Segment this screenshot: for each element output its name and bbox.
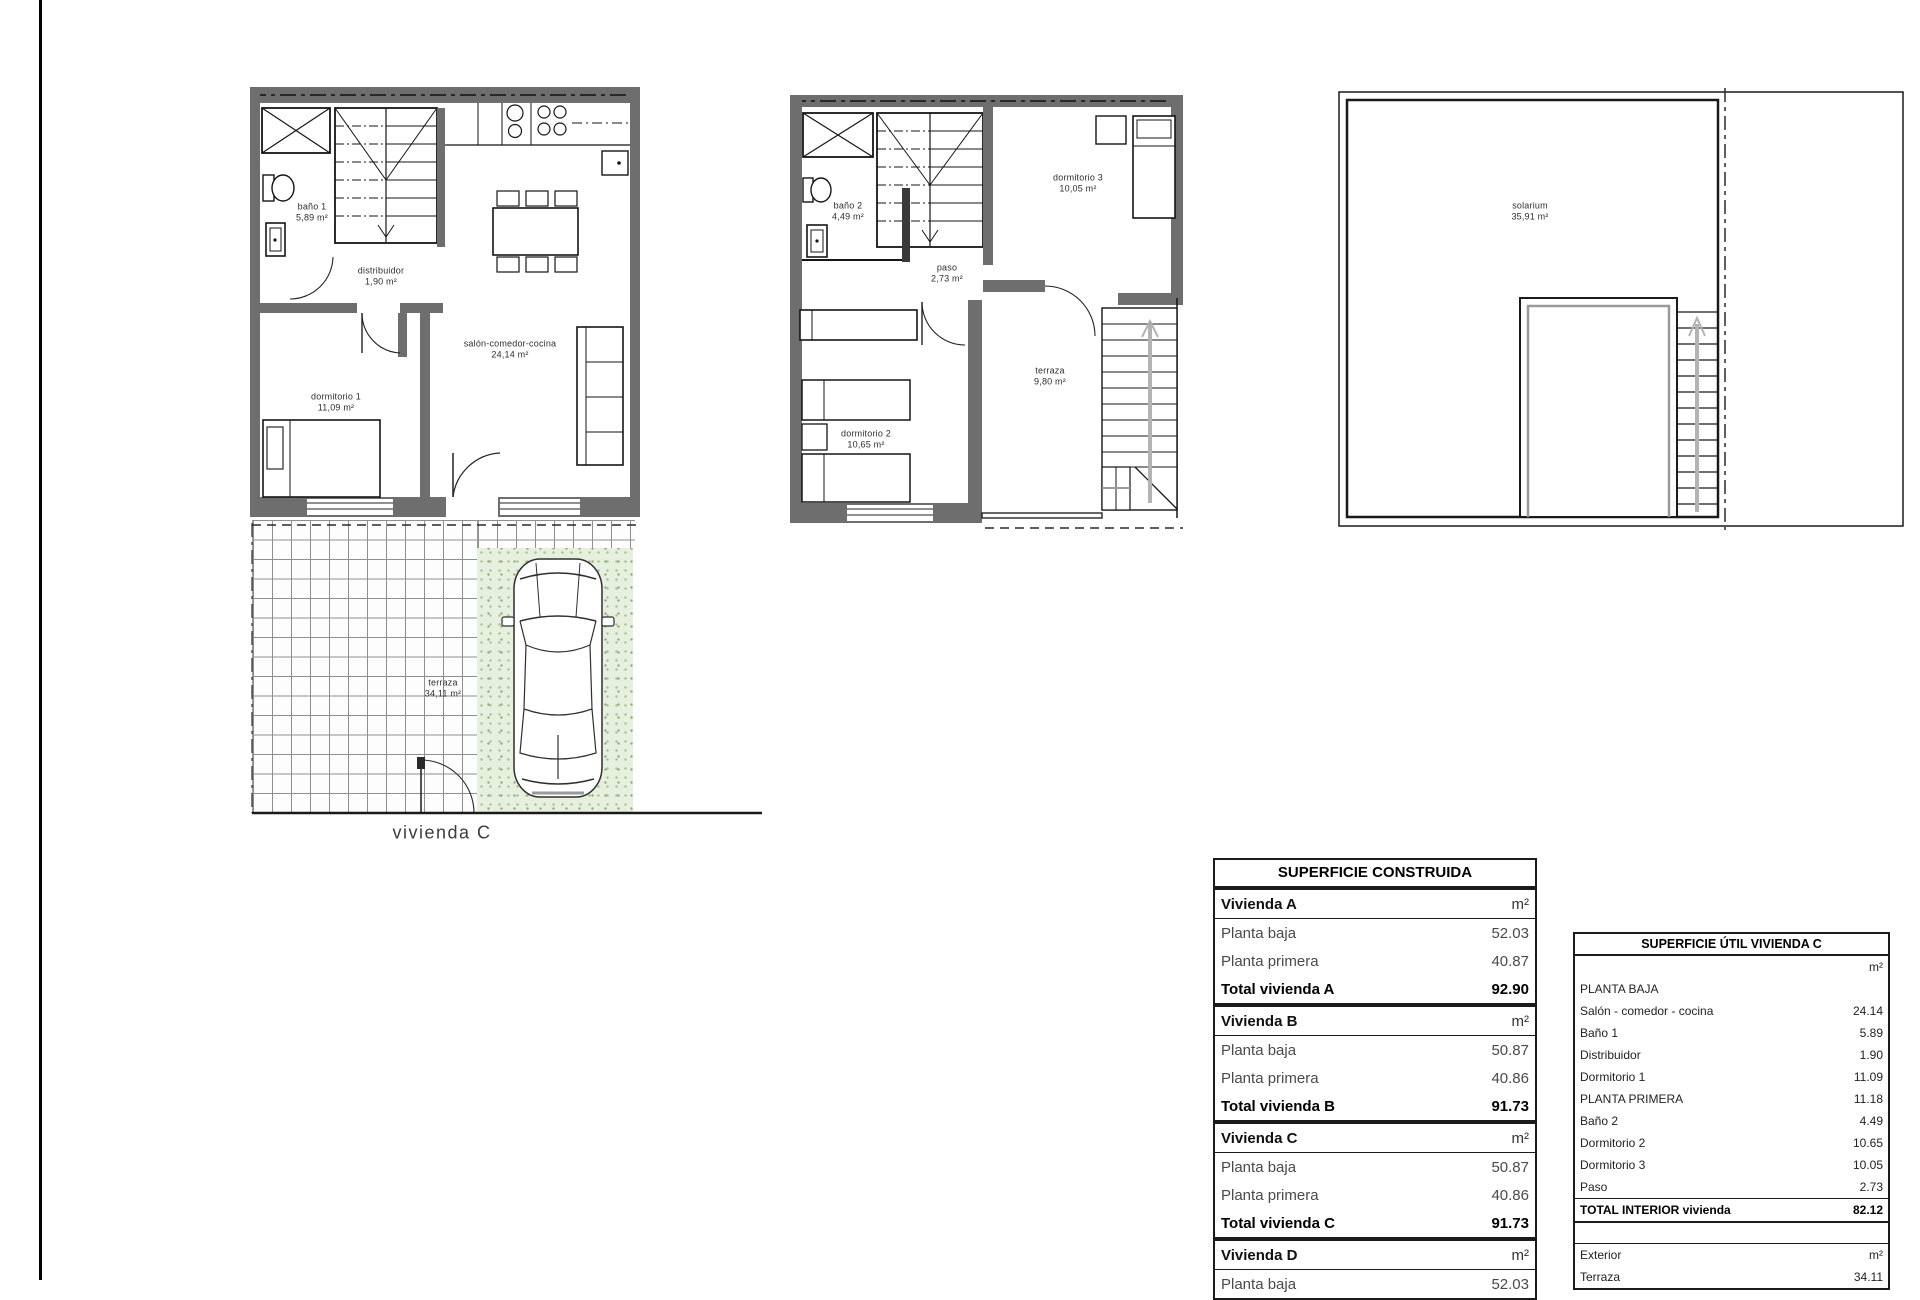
table-row: Vivienda Am²: [1215, 888, 1535, 919]
room-label-salon: salón-comedor-cocina 24,14 m²: [464, 339, 557, 360]
room-name: baño 1: [296, 202, 328, 213]
row-label: Baño 2: [1575, 1111, 1618, 1132]
row-value: 11.18: [1854, 1089, 1888, 1110]
floorplan-planta-primera-drawing: [790, 88, 1183, 533]
room-area: 9,80 m²: [1034, 376, 1066, 387]
row-value: 52.03: [1491, 1271, 1535, 1298]
table-row: Total vivienda C91.73: [1215, 1209, 1535, 1239]
row-label: Paso: [1575, 1177, 1607, 1198]
row-label: Baño 1: [1575, 1023, 1618, 1044]
room-name: dormitorio 3: [1053, 173, 1103, 184]
floorplan-solarium: [1338, 88, 1905, 530]
row-value: 40.87: [1491, 948, 1535, 975]
row-label: Total vivienda C: [1215, 1210, 1335, 1237]
table-row: PLANTA BAJA: [1575, 978, 1888, 1000]
row-label: Terraza: [1575, 1267, 1620, 1288]
table-row: Dormitorio 111.09: [1575, 1066, 1888, 1088]
row-label: Vivienda B: [1215, 1008, 1297, 1035]
table-row: Terraza34.11: [1575, 1266, 1888, 1288]
row-label: Planta primera: [1215, 948, 1319, 975]
table-title: SUPERFICIE CONSTRUIDA: [1215, 860, 1535, 888]
room-area: 2,73 m²: [931, 273, 963, 284]
row-label: Vivienda C: [1215, 1125, 1297, 1152]
room-label-solarium: solarium 35,91 m²: [1511, 201, 1548, 222]
room-name: terraza: [425, 678, 461, 689]
room-area: 11,09 m²: [311, 402, 361, 413]
table-row: Planta baja50.87: [1215, 1036, 1535, 1064]
room-name: dormitorio 1: [311, 392, 361, 403]
row-value: m²: [1512, 1242, 1536, 1269]
row-value: 24.14: [1853, 1001, 1888, 1022]
terrace-drawing: [250, 517, 770, 850]
room-name: terraza: [1034, 366, 1066, 377]
table-row: Paso2.73: [1575, 1176, 1888, 1198]
row-label: Exterior: [1575, 1245, 1621, 1266]
floorplan-planta-primera: [790, 88, 1183, 533]
row-value: 2.73: [1860, 1177, 1888, 1198]
room-label-terraza-pb: terraza 34,11 m²: [425, 678, 461, 699]
row-label: Planta primera: [1215, 1182, 1319, 1209]
room-name: salón-comedor-cocina: [464, 339, 557, 350]
room-area: 35,91 m²: [1511, 211, 1548, 222]
room-label-bano2: baño 2 4,49 m²: [832, 201, 864, 222]
room-name: baño 2: [832, 201, 864, 212]
room-area: 5,89 m²: [296, 212, 328, 223]
table-row: PLANTA PRIMERA11.18: [1575, 1088, 1888, 1110]
room-label-dormitorio1: dormitorio 1 11,09 m²: [311, 392, 361, 413]
table-row: Exteriorm²: [1575, 1243, 1888, 1266]
plan-sheet: { "plans": { "planta_baja": { "caption":…: [0, 0, 1920, 1280]
table-row: Dormitorio 310.05: [1575, 1154, 1888, 1176]
room-label-dormitorio2: dormitorio 2 10,65 m²: [841, 429, 891, 450]
table-row: Planta baja52.03: [1215, 1270, 1535, 1298]
room-area: 34,11 m²: [425, 688, 461, 699]
row-value: m²: [1869, 1245, 1888, 1266]
row-value: 82.12: [1853, 1200, 1888, 1221]
table-row: m²: [1575, 956, 1888, 978]
page-border-line: [39, 0, 42, 1280]
room-name: paso: [931, 263, 963, 274]
table-row-spacer: [1575, 1223, 1888, 1243]
table-row: Planta baja52.03: [1215, 919, 1535, 947]
row-value: 92.90: [1491, 976, 1535, 1003]
room-area: 24,14 m²: [464, 349, 557, 360]
table-title: SUPERFICIE ÚTIL VIVIENDA C: [1575, 934, 1888, 956]
room-label-paso: paso 2,73 m²: [931, 263, 963, 284]
room-label-bano1: baño 1 5,89 m²: [296, 202, 328, 223]
row-label: Planta baja: [1215, 1271, 1296, 1298]
floorplan-solarium-drawing: [1338, 88, 1905, 530]
row-value: m²: [1512, 891, 1536, 918]
row-label: Dormitorio 1: [1575, 1067, 1645, 1088]
table-row: Planta primera40.86: [1215, 1181, 1535, 1209]
row-value: m²: [1869, 957, 1888, 978]
room-area: 4,49 m²: [832, 211, 864, 222]
row-label: Total vivienda B: [1215, 1093, 1335, 1120]
terrace-overlay: [250, 517, 770, 850]
row-value: 50.87: [1491, 1037, 1535, 1064]
table-row: Baño 24.49: [1575, 1110, 1888, 1132]
row-value: m²: [1512, 1125, 1536, 1152]
room-area: 1,90 m²: [358, 276, 404, 287]
table-superficie-util-vivienda-c: SUPERFICIE ÚTIL VIVIENDA C m² PLANTA BAJ…: [1573, 932, 1890, 1290]
room-area: 10,65 m²: [841, 439, 891, 450]
table-row: Vivienda Dm²: [1215, 1239, 1535, 1270]
row-label: Planta baja: [1215, 1154, 1296, 1181]
room-label-distribuidor: distribuidor 1,90 m²: [358, 266, 404, 287]
floorplan-planta-baja: [250, 85, 640, 517]
floorplan-planta-baja-drawing: [250, 85, 640, 517]
row-label: Vivienda A: [1215, 891, 1297, 918]
row-label: Salón - comedor - cocina: [1575, 1001, 1713, 1022]
row-label: Planta baja: [1215, 1037, 1296, 1064]
row-label: Planta primera: [1215, 1065, 1319, 1092]
row-value: 91.73: [1491, 1210, 1535, 1237]
row-value: 52.03: [1491, 920, 1535, 947]
table-superficie-construida: SUPERFICIE CONSTRUIDA Vivienda Am² Plant…: [1213, 858, 1537, 1300]
row-value: 11.09: [1854, 1067, 1888, 1088]
table-row: Total vivienda A92.90: [1215, 975, 1535, 1005]
table-row: Total vivienda B91.73: [1215, 1092, 1535, 1122]
row-label: PLANTA BAJA: [1575, 979, 1658, 1000]
row-value: 40.86: [1491, 1065, 1535, 1092]
row-label: TOTAL INTERIOR vivienda: [1575, 1200, 1731, 1221]
row-value: 5.89: [1860, 1023, 1888, 1044]
row-value: 50.87: [1491, 1154, 1535, 1181]
room-name: solarium: [1511, 201, 1548, 212]
table-row: Planta primera40.86: [1215, 1064, 1535, 1092]
room-name: dormitorio 2: [841, 429, 891, 440]
row-value: m²: [1512, 1008, 1536, 1035]
row-value: 91.73: [1491, 1093, 1535, 1120]
row-label: Dormitorio 3: [1575, 1155, 1645, 1176]
room-label-dormitorio3: dormitorio 3 10,05 m²: [1053, 173, 1103, 194]
row-value: 1.90: [1860, 1045, 1888, 1066]
table-row: Distribuidor1.90: [1575, 1044, 1888, 1066]
row-value: 10.65: [1853, 1133, 1888, 1154]
table-row: Planta baja50.87: [1215, 1153, 1535, 1181]
table-row: Vivienda Cm²: [1215, 1122, 1535, 1153]
room-name: distribuidor: [358, 266, 404, 277]
table-row: Planta primera40.87: [1215, 947, 1535, 975]
room-label-terraza-p1: terraza 9,80 m²: [1034, 366, 1066, 387]
plan-caption-vivienda-c: vivienda C: [392, 823, 491, 844]
table-row: TOTAL INTERIOR vivienda82.12: [1575, 1198, 1888, 1223]
row-value: 40.86: [1491, 1182, 1535, 1209]
row-value: 34.11: [1854, 1267, 1888, 1288]
row-label: Planta baja: [1215, 920, 1296, 947]
row-label: PLANTA PRIMERA: [1575, 1089, 1683, 1110]
table-row: Vivienda Bm²: [1215, 1005, 1535, 1036]
row-label: Distribuidor: [1575, 1045, 1641, 1066]
table-row: Dormitorio 210.65: [1575, 1132, 1888, 1154]
table-row: Baño 15.89: [1575, 1022, 1888, 1044]
room-area: 10,05 m²: [1053, 183, 1103, 194]
row-value: 4.49: [1860, 1111, 1888, 1132]
row-label: Dormitorio 2: [1575, 1133, 1645, 1154]
row-label: Vivienda D: [1215, 1242, 1297, 1269]
table-row: Salón - comedor - cocina24.14: [1575, 1000, 1888, 1022]
row-value: 10.05: [1853, 1155, 1888, 1176]
row-label: Total vivienda A: [1215, 976, 1334, 1003]
